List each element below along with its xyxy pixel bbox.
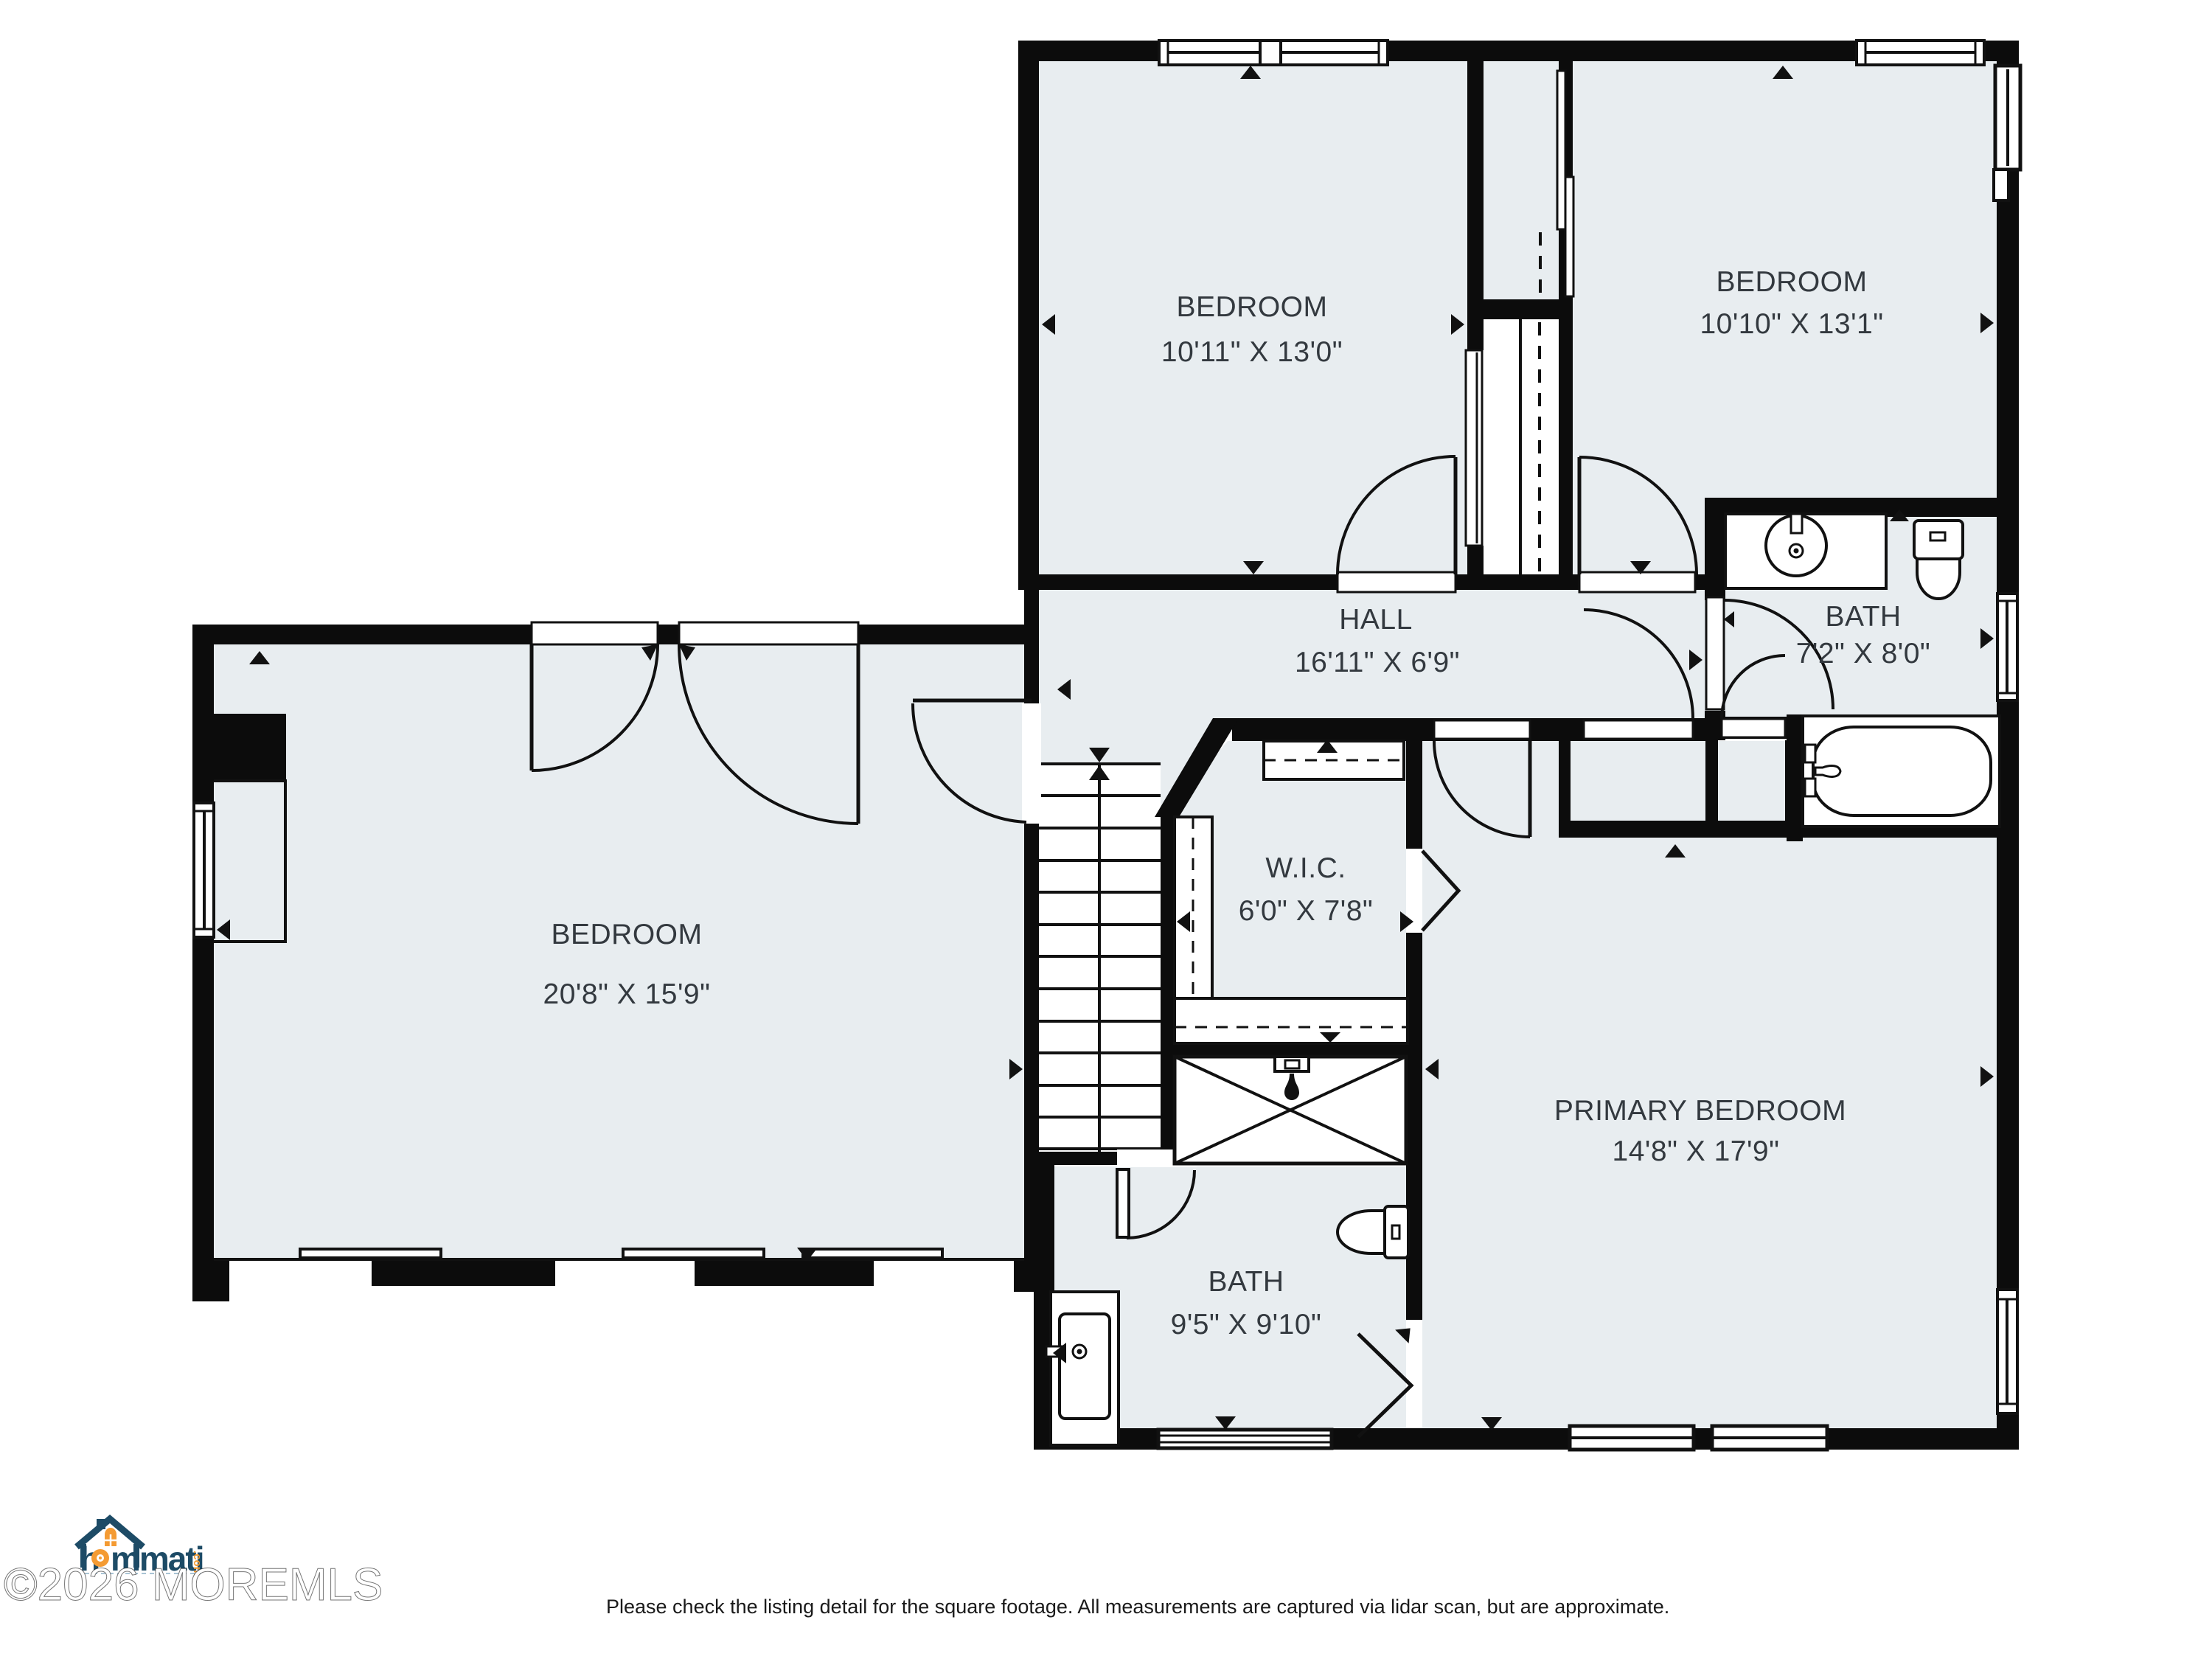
svg-text:7'2" X 8'0": 7'2" X 8'0" xyxy=(1796,638,1931,669)
svg-text:Please check the listing detai: Please check the listing detail for the … xyxy=(606,1596,1669,1618)
svg-text:9'5" X 9'10": 9'5" X 9'10" xyxy=(1171,1309,1322,1340)
svg-text:BATH: BATH xyxy=(1825,601,1901,633)
svg-text:BEDROOM: BEDROOM xyxy=(551,919,702,950)
svg-text:BEDROOM: BEDROOM xyxy=(1176,291,1327,323)
svg-text:BEDROOM: BEDROOM xyxy=(1716,266,1867,298)
svg-text:BATH: BATH xyxy=(1208,1266,1284,1298)
svg-text:6'0" X 7'8": 6'0" X 7'8" xyxy=(1239,895,1374,927)
svg-text:HALL: HALL xyxy=(1339,604,1413,636)
svg-text:10'11" X 13'0": 10'11" X 13'0" xyxy=(1161,336,1343,368)
svg-text:14'8" X 17'9": 14'8" X 17'9" xyxy=(1613,1135,1780,1167)
svg-text:©2026 MOREMLS: ©2026 MOREMLS xyxy=(4,1559,383,1610)
svg-text:10'10" X 13'1": 10'10" X 13'1" xyxy=(1700,308,1883,340)
svg-text:20'8" X 15'9": 20'8" X 15'9" xyxy=(543,978,711,1010)
svg-text:W.I.C.: W.I.C. xyxy=(1265,852,1346,884)
svg-text:PRIMARY BEDROOM: PRIMARY BEDROOM xyxy=(1554,1095,1846,1127)
svg-text:16'11" X 6'9": 16'11" X 6'9" xyxy=(1295,647,1460,678)
